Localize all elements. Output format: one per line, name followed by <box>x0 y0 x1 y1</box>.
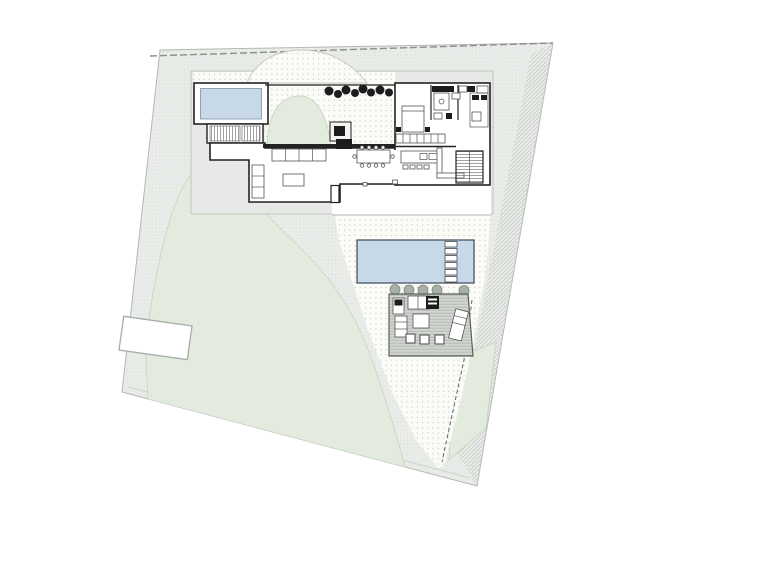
kitchen-counter-black <box>432 86 454 92</box>
coffee-table <box>283 174 304 186</box>
sink <box>434 113 442 119</box>
lower-terrace <box>332 185 491 215</box>
door-marker <box>393 180 398 184</box>
deck-stools <box>406 334 444 344</box>
dining-table <box>357 150 390 163</box>
bed <box>402 106 424 132</box>
stairs-west-landing <box>242 126 260 141</box>
deck-table <box>413 314 429 328</box>
plunge-pool-water <box>201 89 262 120</box>
tv-unit <box>336 139 352 149</box>
sofa-vertical <box>252 165 264 198</box>
facade-marker <box>363 183 367 187</box>
deck <box>389 294 473 356</box>
shower <box>434 93 449 110</box>
stairs-west <box>210 126 240 141</box>
site-plan-canvas <box>0 0 768 566</box>
facade-pillar <box>331 186 339 203</box>
main-pool <box>357 240 474 283</box>
site-plan-drawing <box>0 0 768 566</box>
toilet <box>452 93 460 99</box>
lounge-chair-left <box>395 316 407 337</box>
